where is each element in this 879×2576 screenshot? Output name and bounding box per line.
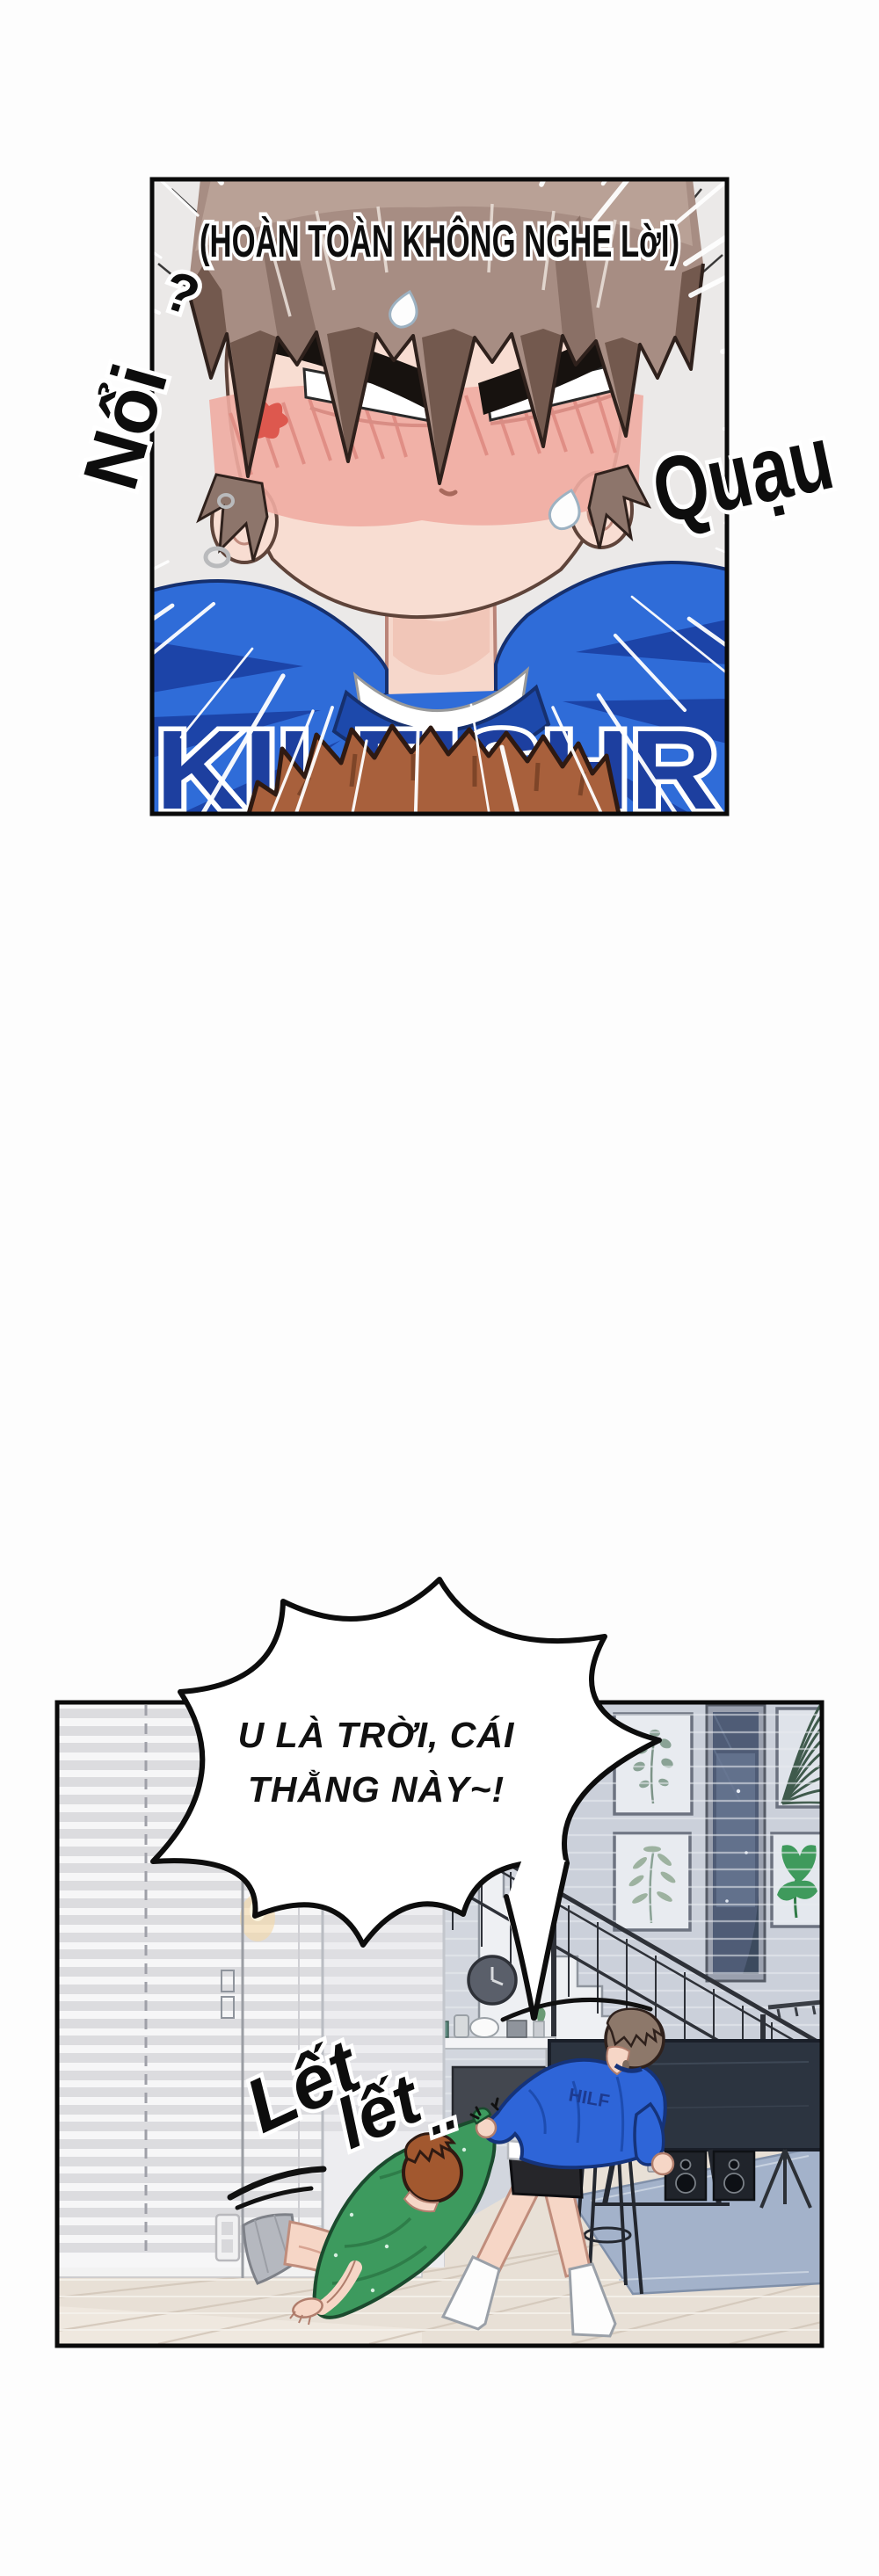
- svg-text:U LÀ TRỜI, CÁI: U LÀ TRỜI, CÁI: [238, 1715, 515, 1755]
- svg-text:(HOÀN TOÀN KHÔNG NGHE LờI): (HOÀN TOÀN KHÔNG NGHE LờI): [200, 215, 679, 267]
- svg-text:THẰNG NÀY~!: THẰNG NÀY~!: [248, 1769, 505, 1810]
